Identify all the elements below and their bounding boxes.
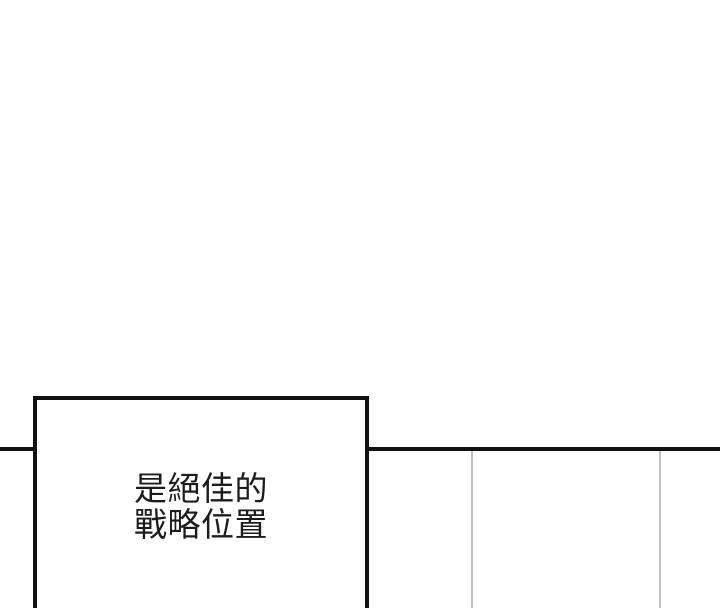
background-wall-line-right [659, 451, 661, 608]
speech-bubble: 是絕佳的 戰略位置 [33, 396, 369, 608]
speech-bubble-text: 是絕佳的 戰略位置 [134, 471, 268, 543]
comic-page: 是絕佳的 戰略位置 [0, 0, 720, 608]
speech-text-line-1: 是絕佳的 [134, 471, 268, 507]
speech-text-line-2: 戰略位置 [134, 507, 268, 543]
background-wall-line-left [471, 451, 473, 608]
